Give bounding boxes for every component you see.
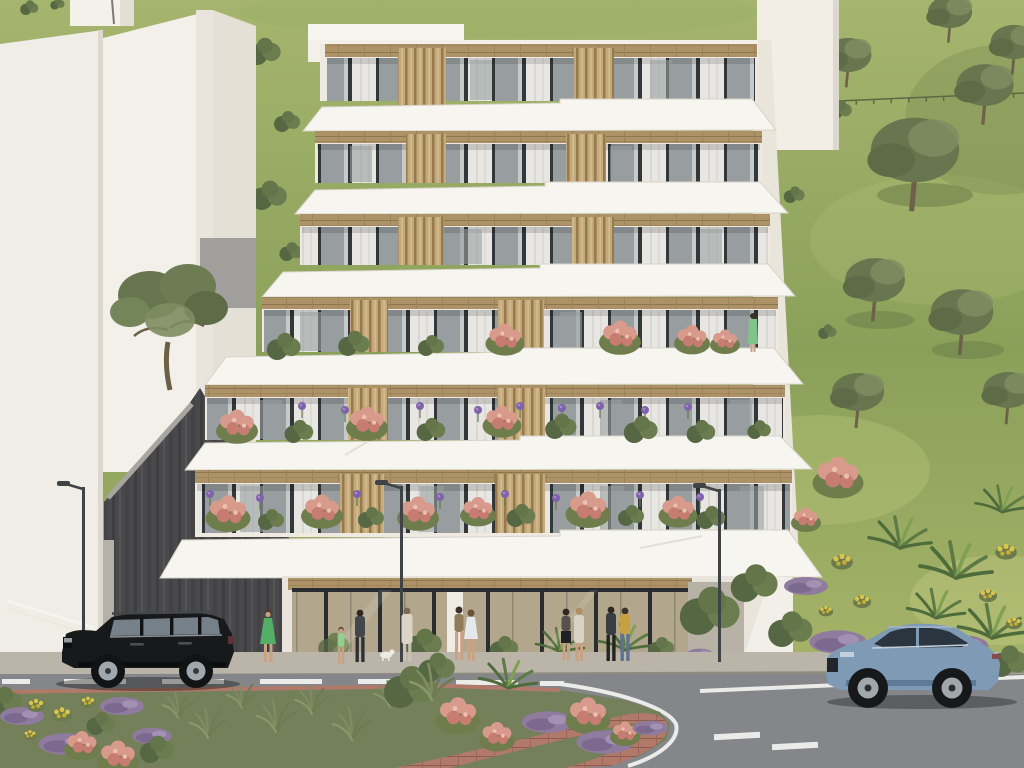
- person-leg: [563, 643, 566, 660]
- black-suv-taillight: [228, 636, 234, 644]
- floor3-glazing-shadow: [302, 227, 768, 233]
- roof-parapet-upper: [308, 24, 464, 42]
- person-body: [748, 319, 758, 344]
- person-leg: [356, 637, 359, 662]
- person-leg: [472, 639, 475, 661]
- person-leg: [567, 643, 570, 660]
- person-leg: [751, 344, 753, 352]
- rendered-scene: [0, 0, 1024, 768]
- floor2-dark-pane: [610, 146, 632, 182]
- floor3-dark-pane: [700, 229, 722, 264]
- floor6-soffit: [195, 470, 792, 483]
- car-shadow: [56, 677, 240, 691]
- dog-head: [389, 649, 394, 654]
- stair-core-edge: [833, 0, 839, 150]
- black-suv-roof-rails: [112, 612, 214, 614]
- floor1-slat-screen: [574, 48, 614, 105]
- floor2-slat-screen: [406, 134, 446, 183]
- blue-suv-headlight: [840, 652, 854, 657]
- floor2-dark-pane: [350, 146, 372, 182]
- person-hair: [357, 610, 364, 617]
- floor-2: [295, 131, 788, 214]
- black-suv-pillar: [140, 617, 143, 636]
- dog-leg: [388, 657, 390, 661]
- person-leg: [754, 344, 756, 352]
- floor4-dark-pane: [300, 312, 322, 351]
- island-lavender: [632, 721, 667, 735]
- floor6-dark-pane: [740, 486, 764, 532]
- floor5-dark-pane: [260, 400, 282, 439]
- floor2-glazing-shadow: [317, 144, 760, 150]
- floor1-slat-screen: [398, 48, 446, 105]
- lamp-pole: [718, 489, 721, 662]
- lamp-head: [693, 483, 706, 488]
- lane-dash: [2, 679, 30, 684]
- storefront-head-rail: [292, 588, 688, 592]
- floor2-slat-screen: [566, 134, 606, 183]
- floor1-dark-pane: [650, 60, 672, 100]
- person-hair: [404, 608, 411, 615]
- neighbour-face-left: [0, 30, 103, 658]
- floor-3: [262, 214, 795, 297]
- person-coat: [402, 614, 413, 644]
- lamp-pole: [82, 487, 85, 652]
- person-leg: [342, 647, 344, 664]
- black-suv-headlight: [64, 638, 72, 643]
- person-hair: [576, 608, 583, 615]
- front-tree-canopy: [145, 303, 195, 337]
- blue-suv-hub: [865, 685, 872, 692]
- tree-shadow: [846, 311, 914, 329]
- person-hair: [456, 607, 463, 614]
- black-suv-door-handle: [130, 643, 144, 646]
- floor4-dark-pane: [560, 312, 582, 351]
- person-top: [562, 616, 571, 631]
- person-leg: [621, 634, 624, 661]
- person-leg: [403, 644, 406, 661]
- person-leg: [468, 639, 471, 661]
- floor3-slat-screen: [398, 217, 444, 265]
- person-head: [265, 612, 270, 617]
- black-suv-door-handle: [178, 642, 192, 645]
- floor-4: [205, 297, 803, 385]
- person-leg: [576, 643, 579, 661]
- blue-suv-grille: [827, 658, 838, 672]
- scene-canvas: [0, 0, 1024, 768]
- floor1-glazing: [327, 58, 755, 101]
- black-suv-pillar: [198, 616, 201, 635]
- person-leg: [264, 644, 267, 662]
- person-leg: [612, 635, 615, 661]
- neighbour-corner-shade: [98, 30, 103, 658]
- black-suv-pillar: [170, 616, 173, 635]
- person-hair: [622, 608, 629, 615]
- blue-suv-hub: [949, 685, 956, 692]
- person-head: [339, 629, 343, 633]
- black-suv-hub: [193, 668, 199, 674]
- person-leg: [408, 644, 411, 661]
- floor3-slat-screen: [572, 217, 614, 265]
- tree-shadow: [877, 183, 973, 207]
- floor-5: [185, 385, 812, 470]
- person-leg: [460, 632, 463, 660]
- person-hair: [563, 609, 570, 616]
- island-lavender: [100, 697, 144, 715]
- person-jacket: [620, 614, 630, 634]
- garden-lavender: [784, 577, 828, 595]
- dog-leg: [382, 657, 384, 661]
- person-hair: [750, 313, 756, 319]
- floor1-glazing-shadow: [327, 58, 755, 64]
- person-leg: [270, 644, 273, 662]
- floor3-soffit: [300, 214, 770, 226]
- lane-dash: [260, 679, 322, 684]
- black-suv-windows: [110, 617, 220, 636]
- person-hair: [468, 610, 475, 617]
- tree-shadow: [932, 341, 1004, 359]
- floor2-soffit: [315, 131, 762, 143]
- person-cardigan: [574, 615, 584, 643]
- front-tree-canopy: [110, 297, 150, 327]
- lamp-head: [375, 480, 388, 485]
- rooftop-cube-shade: [120, 0, 134, 26]
- person-shirt: [338, 633, 345, 647]
- person-leg: [455, 632, 458, 660]
- person-jacket: [606, 613, 616, 635]
- floor-1: [303, 44, 776, 131]
- person-leg: [338, 647, 340, 664]
- person-leg: [607, 635, 610, 661]
- person-top: [455, 614, 464, 632]
- blue-suv-pillar: [916, 628, 919, 648]
- person-hair: [608, 607, 615, 614]
- person-skirt: [561, 631, 571, 643]
- floor5-glazing-shadow: [207, 398, 783, 404]
- floor5-soffit: [205, 385, 785, 397]
- floor-6: [160, 470, 822, 578]
- person-leg: [361, 637, 364, 662]
- person-leg: [626, 634, 629, 661]
- floor1-dark-pane: [470, 60, 492, 100]
- floor1-soffit: [325, 44, 757, 57]
- lamp-head: [57, 481, 70, 486]
- blue-suv-taillight: [992, 654, 1000, 659]
- person-leg: [580, 643, 583, 661]
- person-jacket: [355, 616, 365, 637]
- black-suv-hub: [105, 668, 111, 674]
- floor3-dark-pane: [460, 229, 482, 264]
